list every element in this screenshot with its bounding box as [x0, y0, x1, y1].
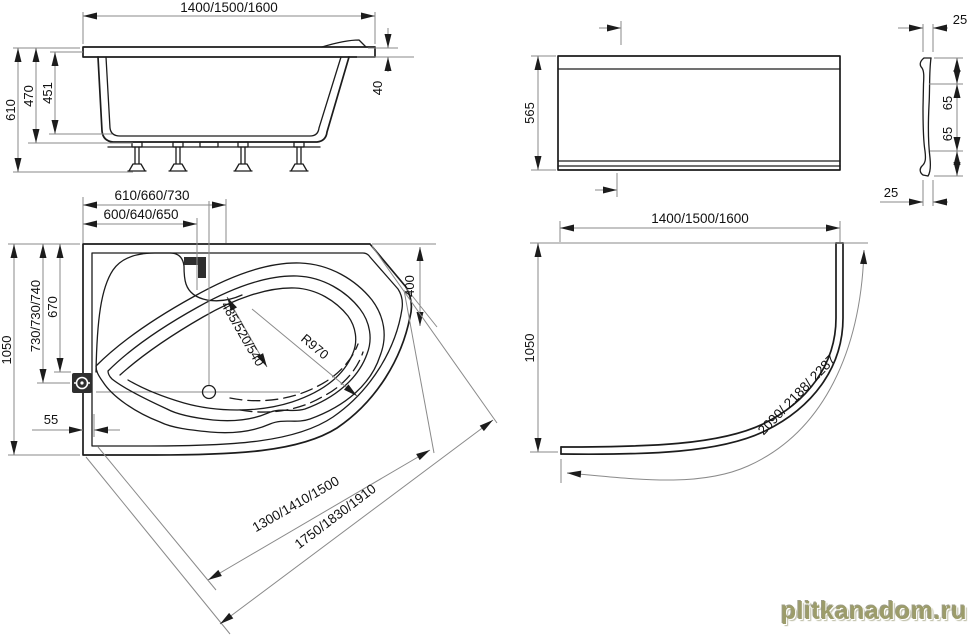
dim-side-rim-height: 40: [370, 81, 385, 95]
plan-view: 610/660/730 600/640/650 1050 730/730/740…: [0, 188, 497, 634]
dim-apron-height: 565: [522, 102, 537, 124]
overflow-fitting-icon: [72, 373, 92, 393]
dim-plan-waist: 485/520/540: [218, 299, 267, 369]
technical-drawing-page: 1400/1500/1600 610 470 451 40: [0, 0, 970, 636]
dim-plan-left-inner: 670: [45, 296, 60, 318]
apron-profile-outline: [920, 58, 931, 176]
dim-plan-height: 1050: [0, 336, 14, 365]
dim-profile-hook-lower: 65: [940, 127, 955, 141]
side-elevation-view: 1400/1500/1600 610 470 451 40: [3, 0, 414, 172]
mixer-tap-icon: [184, 257, 206, 278]
dim-plan-radius: R970: [298, 331, 331, 362]
dim-apron-plan-width: 1400/1500/1600: [651, 211, 749, 226]
dim-side-inner-depth: 451: [40, 82, 55, 104]
dim-side-width: 1400/1500/1600: [180, 0, 278, 15]
watermark-text: plitkanadom.ru: [762, 597, 967, 626]
dim-profile-hook-upper: 65: [940, 96, 955, 110]
dim-apron-plan-height: 1050: [522, 334, 537, 363]
dim-plan-side-offset: 55: [44, 412, 58, 427]
dim-plan-left-outer: 730/730/740: [28, 280, 43, 352]
bathtub-technical-drawing: 1400/1500/1600 610 470 451 40: [0, 0, 970, 636]
apron-profile-view: 25 25 65 65: [880, 12, 967, 206]
rim-shelf-contour: [96, 253, 242, 372]
bathtub-side-outline: [83, 40, 375, 147]
dim-profile-top-gap: 25: [953, 12, 967, 27]
dim-plan-top-inner: 600/640/650: [103, 207, 178, 222]
dim-profile-bottom-gap: 25: [884, 185, 898, 200]
dim-side-body-height: 470: [21, 85, 36, 107]
dim-plan-top-outer: 610/660/730: [114, 188, 189, 203]
headrest-lip: [322, 40, 366, 47]
apron-plan-view: 1400/1500/1600 1050 2090/ 2188/ 2287: [522, 211, 868, 483]
apron-front-outline: [558, 56, 840, 170]
apron-front-view: 565: [522, 21, 840, 197]
apron-plan-outline: [561, 243, 843, 454]
side-view-dimensions: 1400/1500/1600 610 470 451 40: [3, 0, 414, 172]
bowl-rim-outer: [96, 263, 384, 433]
dim-side-total-height: 610: [3, 99, 18, 121]
